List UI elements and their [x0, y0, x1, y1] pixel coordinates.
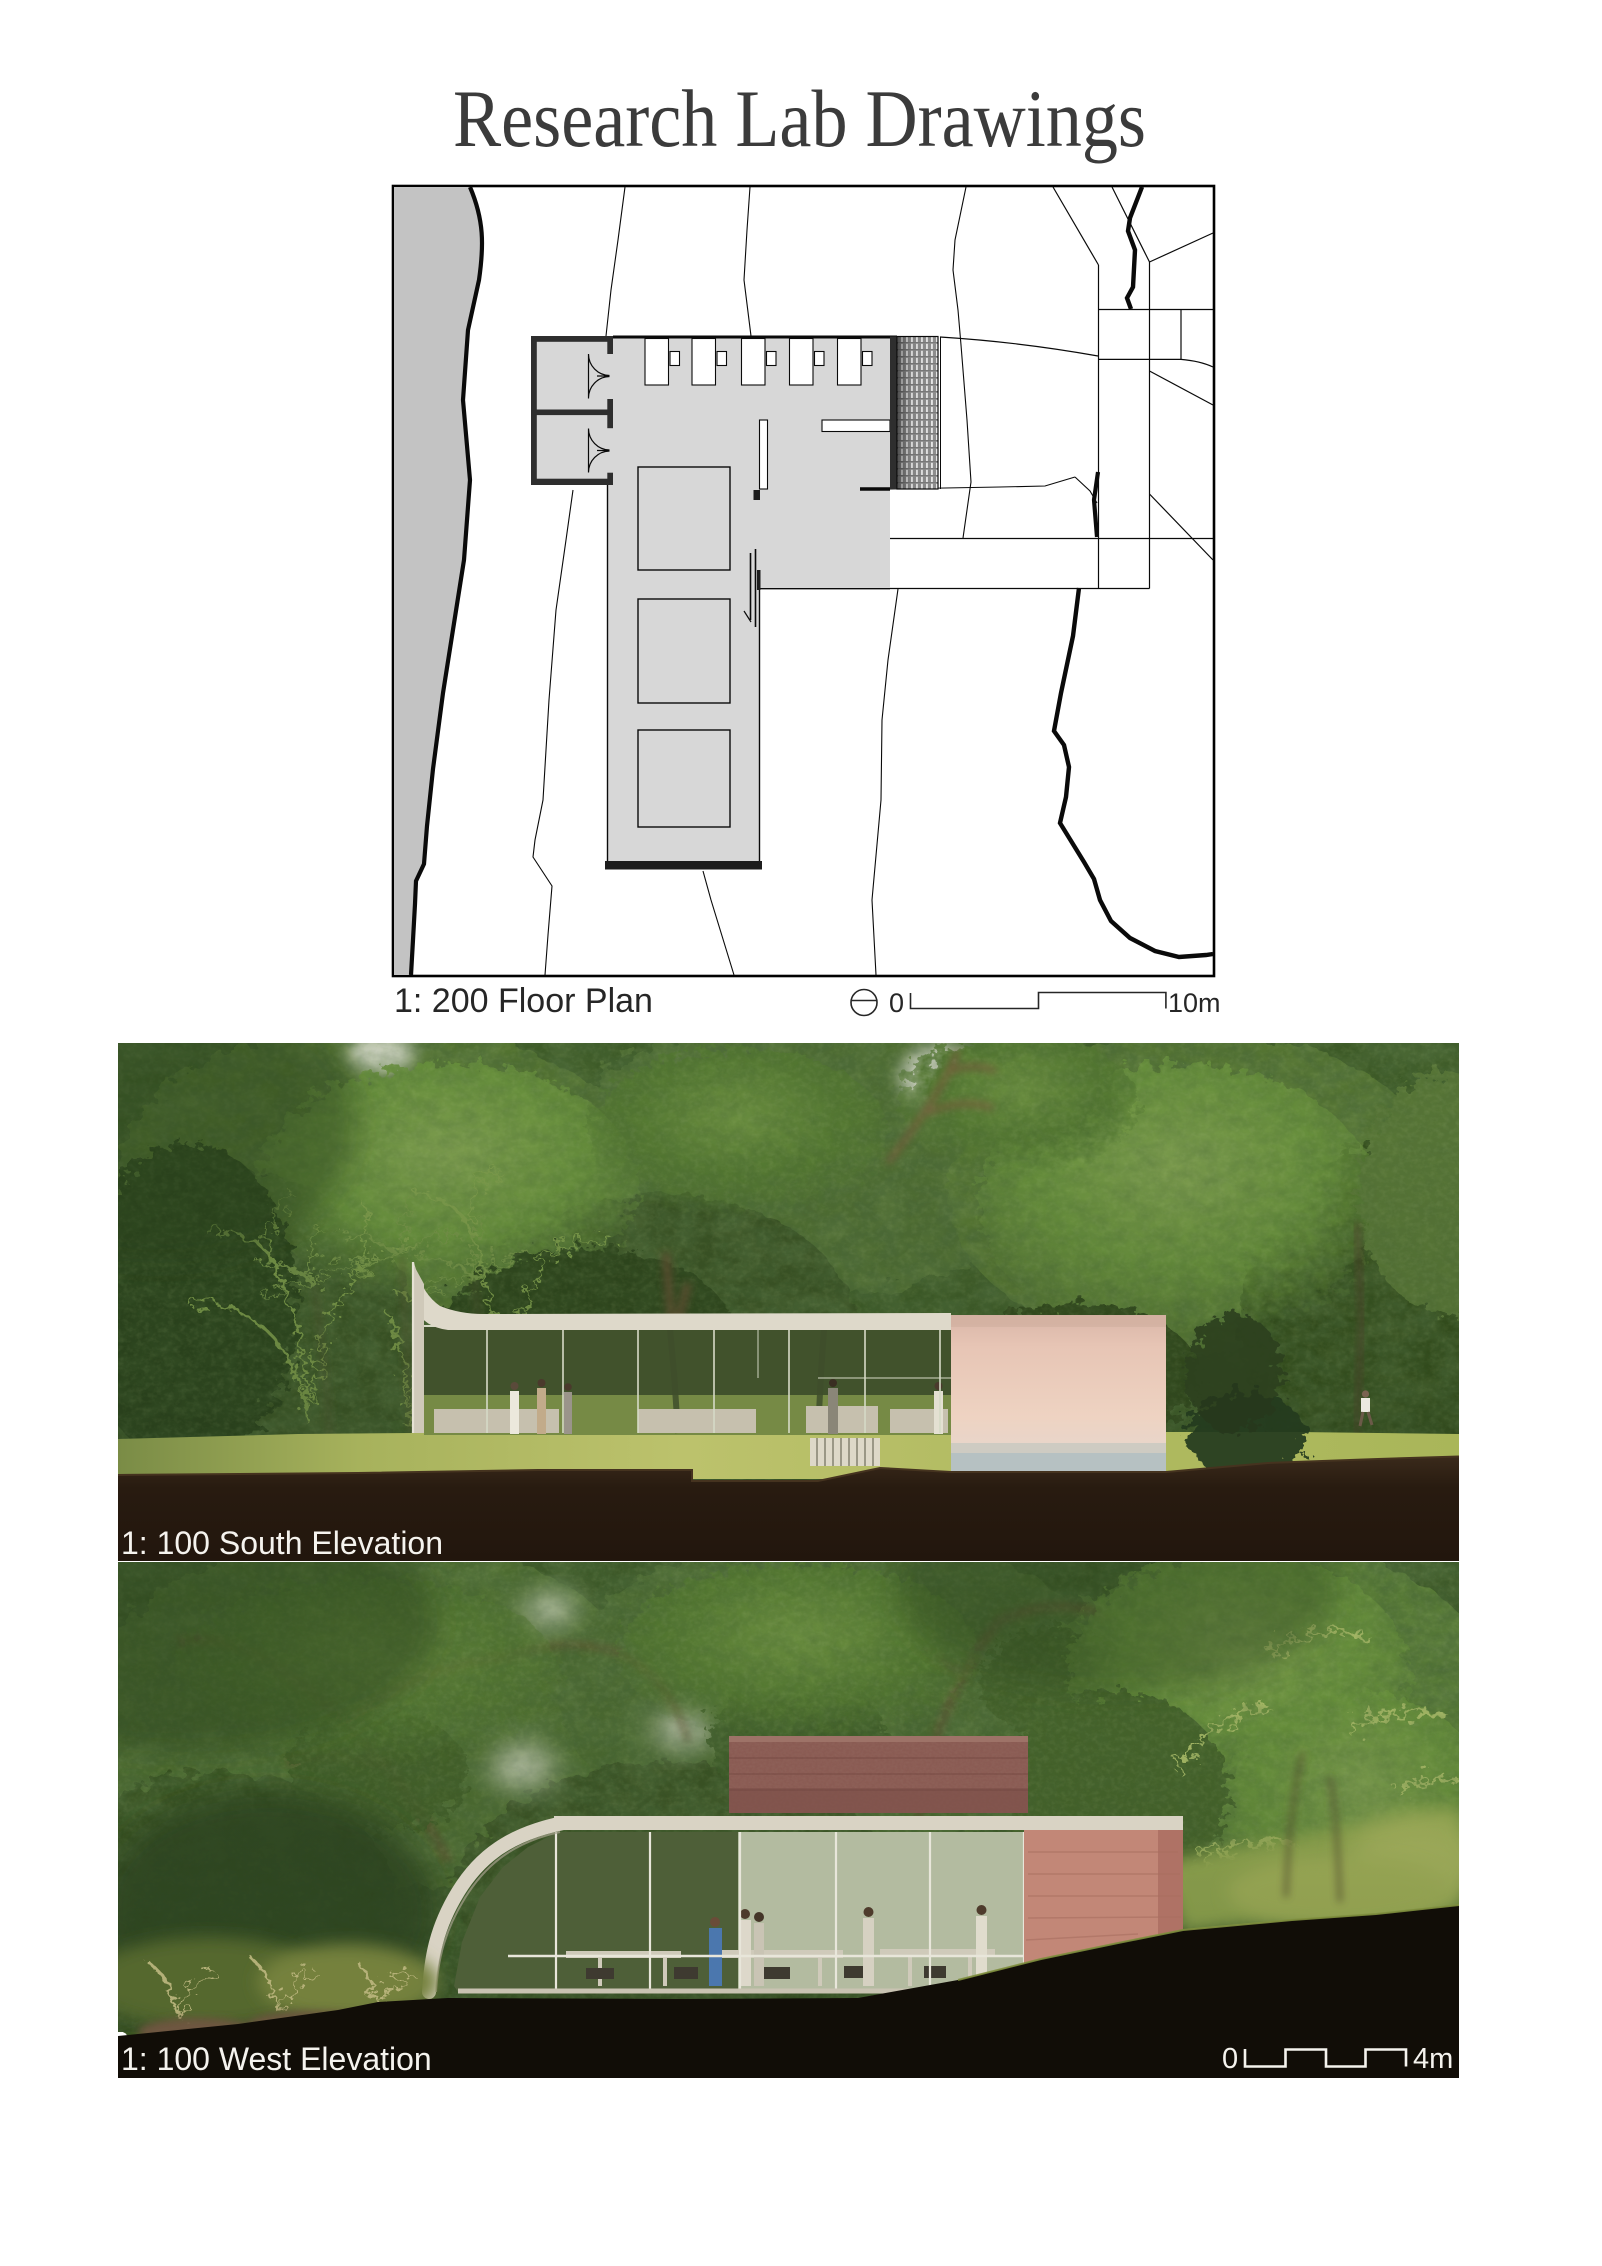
svg-text:1: 100 West Elevation: 1: 100 West Elevation [121, 2041, 432, 2077]
svg-text:4m: 4m [1413, 2043, 1453, 2075]
svg-text:1: 200 Floor Plan: 1: 200 Floor Plan [394, 982, 653, 1020]
svg-text:1: 100 South Elevation: 1: 100 South Elevation [121, 1525, 443, 1561]
svg-text:10m: 10m [1168, 988, 1221, 1018]
svg-text:Research Lab Drawings: Research Lab Drawings [453, 73, 1146, 164]
svg-text:0: 0 [1222, 2043, 1238, 2075]
svg-text:0: 0 [889, 988, 904, 1018]
